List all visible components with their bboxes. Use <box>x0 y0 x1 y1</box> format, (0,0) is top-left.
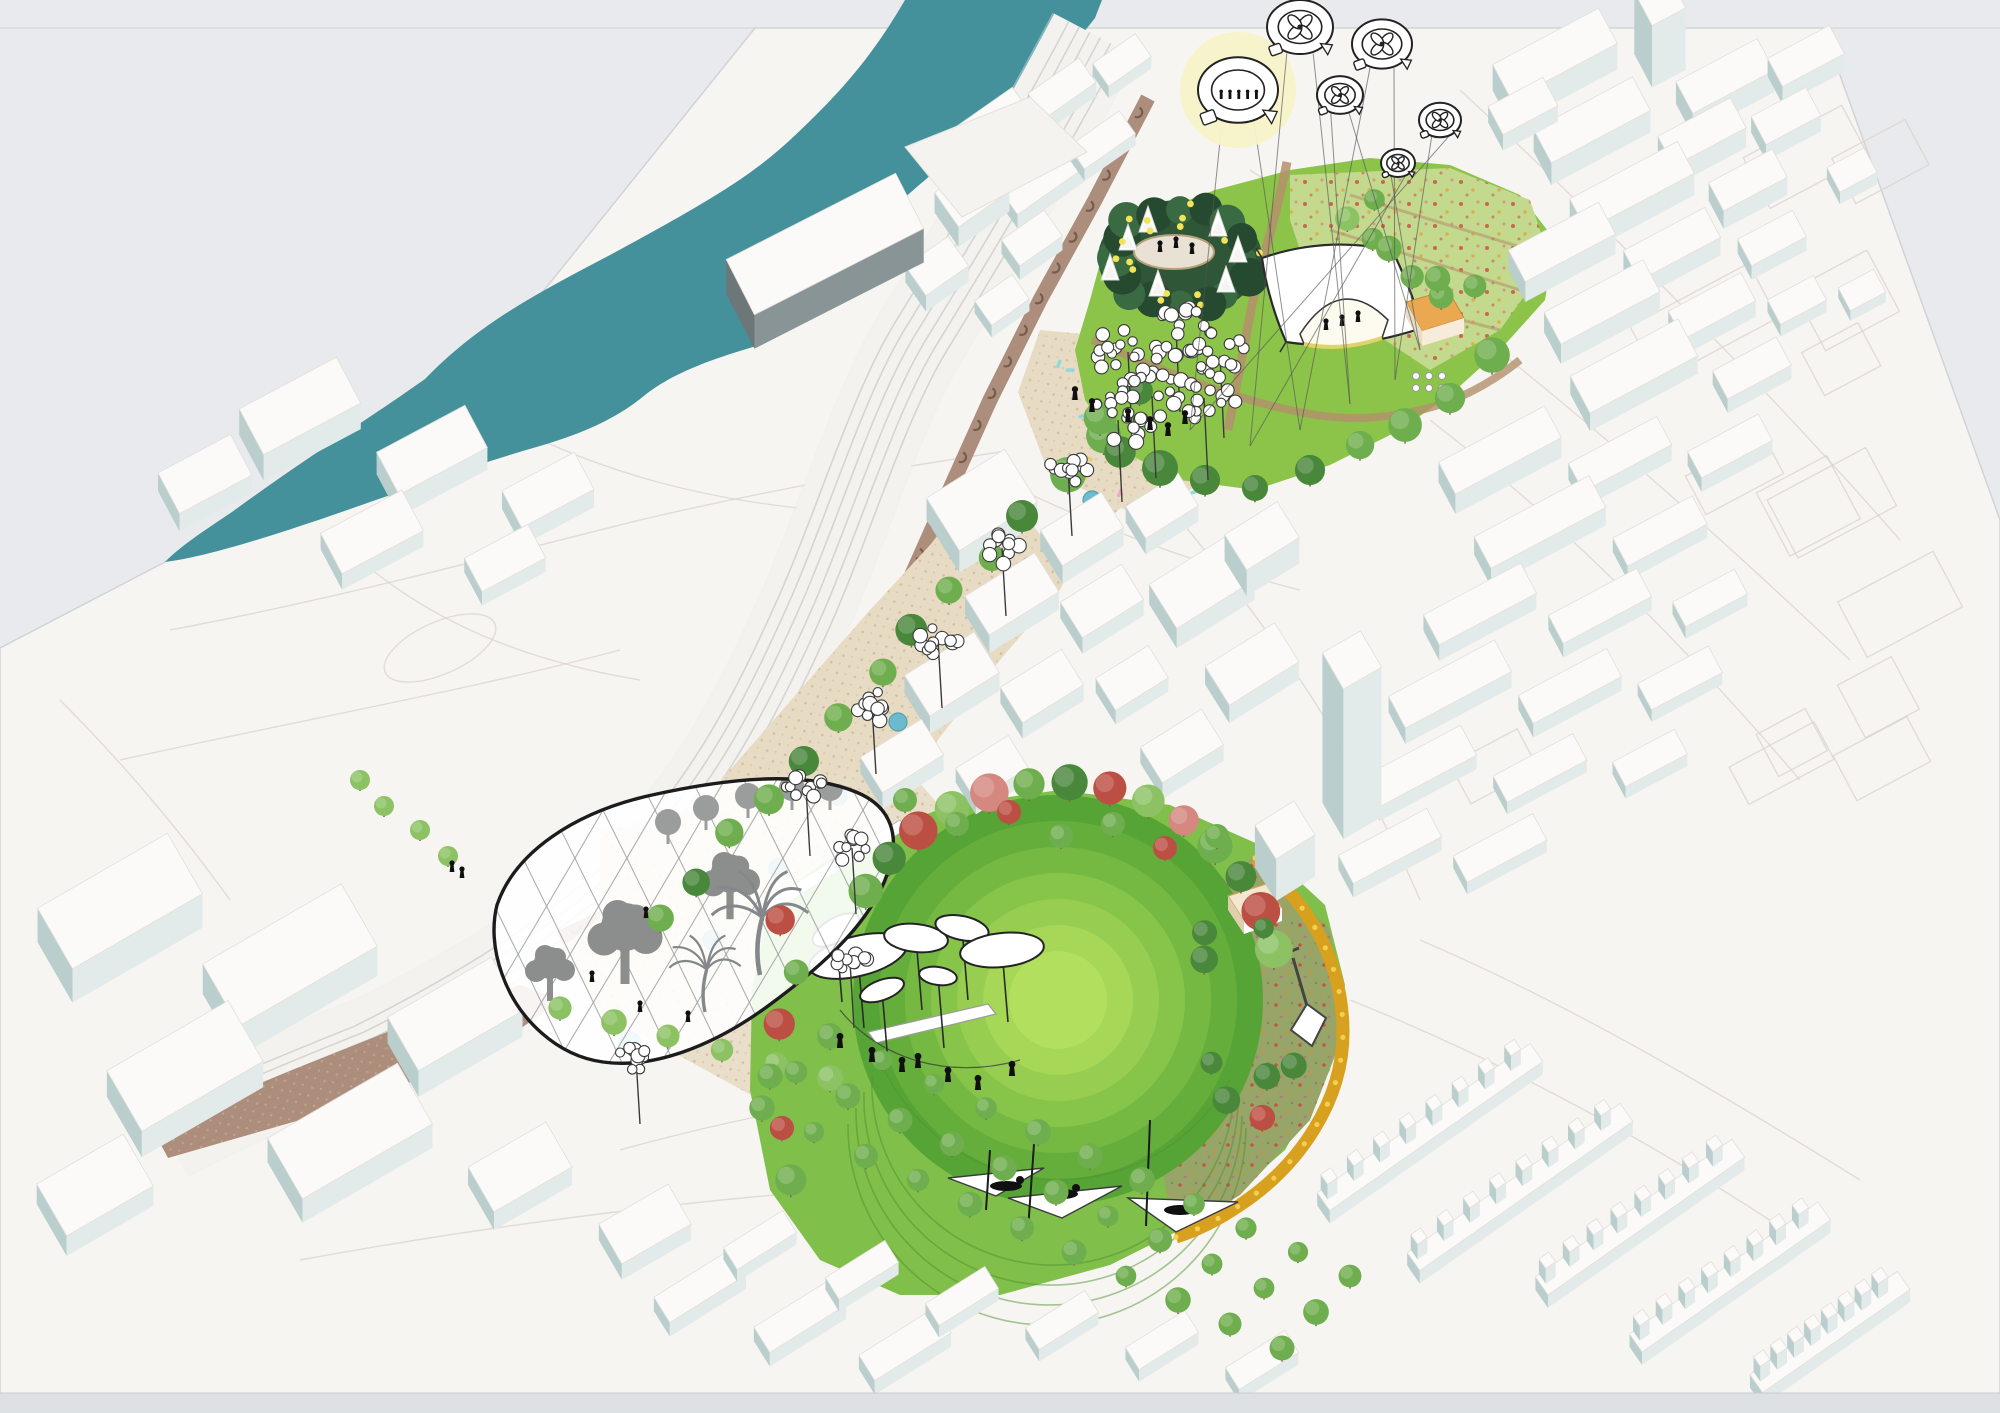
model-base-edge <box>0 1393 2000 1413</box>
masterplan-rendering <box>0 0 2000 1413</box>
masterplan-svg <box>0 0 2000 1413</box>
residential-tower <box>1322 631 1381 839</box>
